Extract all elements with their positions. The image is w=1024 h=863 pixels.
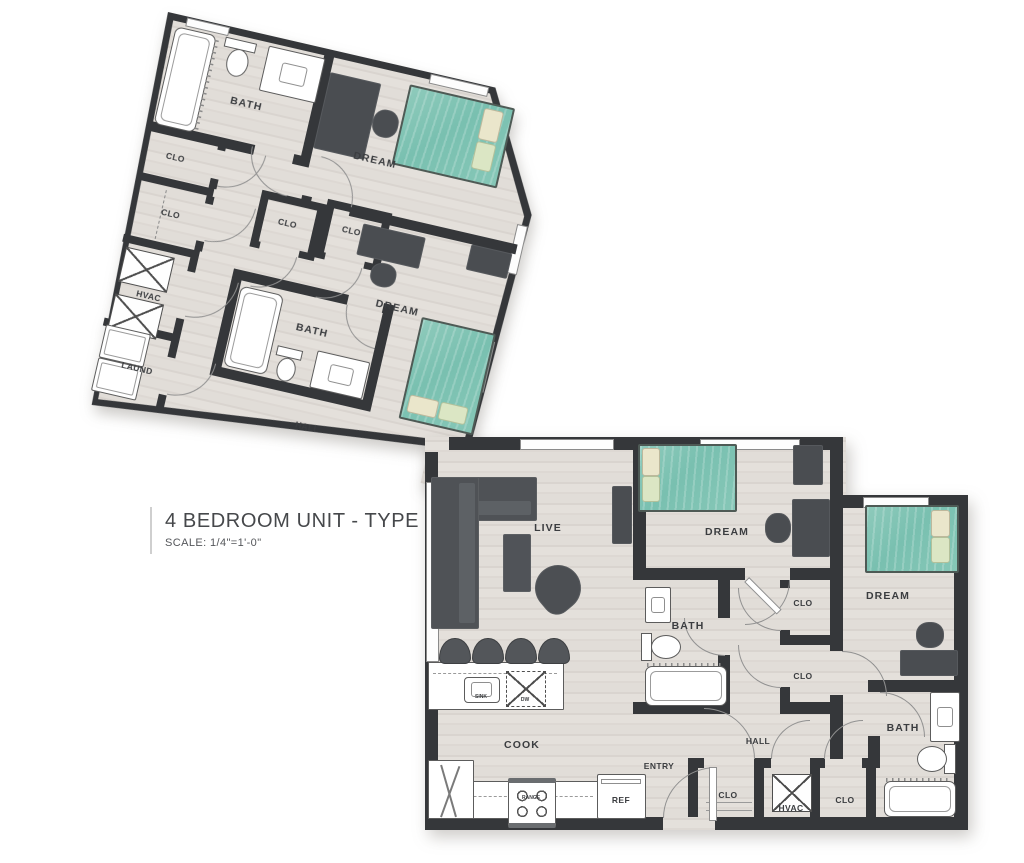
- room-label-closet-7: CLO: [718, 790, 737, 800]
- room-label-bath-4: BATH: [887, 722, 920, 734]
- desk: [792, 499, 830, 557]
- room-label-closet-8: CLO: [835, 795, 854, 805]
- room-label-closet-6: CLO: [793, 671, 812, 681]
- room-label-closet-5: CLO: [793, 598, 812, 608]
- pillow: [642, 448, 660, 476]
- pillow: [931, 537, 950, 563]
- room-label-kitchen: COOK: [504, 739, 540, 751]
- room-label-hall-2: HALL: [746, 736, 770, 746]
- room-label-bath-3: BATH: [672, 620, 705, 632]
- dishwasher-label: DW: [521, 697, 529, 703]
- upper-wing: BATH CLO CLO HVAC LAUND CLO CLO DREAM DR…: [78, 12, 558, 494]
- pillow: [931, 510, 950, 537]
- sofa: [431, 477, 479, 629]
- room-label-bedroom-3: DREAM: [705, 526, 749, 538]
- pillow: [642, 476, 660, 502]
- dresser: [793, 445, 823, 485]
- lower-wing: SINK DW RANGE REF: [425, 437, 968, 830]
- desk-chair: [765, 513, 791, 543]
- room-label-entry: ENTRY: [644, 761, 675, 771]
- title-block: 4 BEDROOM UNIT - TYPE 4G SCALE: 1/4"=1'-…: [150, 507, 453, 554]
- room-label-bedroom-4: DREAM: [866, 590, 910, 602]
- desk-chair: [916, 622, 944, 648]
- range-stove: [508, 778, 556, 828]
- refrigerator-label: REF: [612, 795, 630, 805]
- plan-scale-note: SCALE: 1/4"=1'-0": [165, 537, 453, 549]
- toilet: [917, 746, 947, 772]
- window: [520, 439, 614, 450]
- plan-title: 4 BEDROOM UNIT - TYPE 4G: [165, 510, 453, 533]
- toilet: [651, 635, 681, 659]
- sink-label: SINK: [475, 694, 487, 700]
- room-label-hvac-2: HVAC: [778, 803, 803, 813]
- room-label-living: LIVE: [534, 522, 562, 534]
- bathroom-vanity: [645, 587, 671, 623]
- tv-console: [612, 486, 632, 544]
- bathtub: [884, 781, 956, 817]
- coffee-table: [503, 534, 531, 592]
- desk: [900, 650, 958, 676]
- bathtub: [645, 666, 727, 706]
- range-label: RANGE: [522, 795, 540, 801]
- bathroom-vanity: [930, 692, 960, 742]
